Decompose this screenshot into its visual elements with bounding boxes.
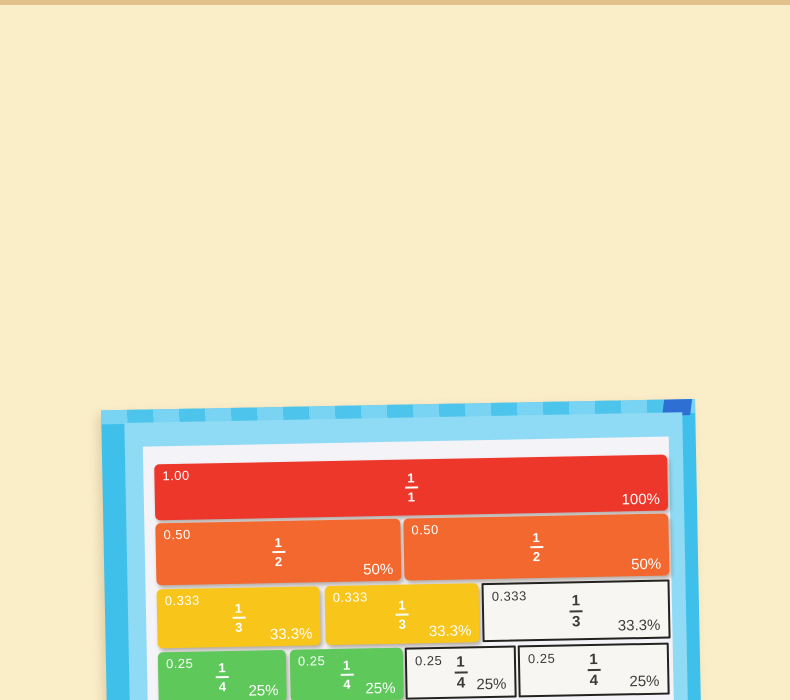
fraction-numerator: 1 (569, 593, 582, 612)
fraction-label: 1 3 (232, 601, 246, 633)
decimal-label: 0.50 (163, 527, 191, 543)
percent-label: 50% (363, 561, 393, 579)
fraction-numerator: 1 (454, 654, 467, 673)
fraction-tile-1-4: 0.25 1 4 25% (158, 650, 287, 700)
fraction-tile-1-3: 0.333 1 3 33.3% (157, 586, 321, 648)
fraction-board: 1.00 1 1 100% 0.50 1 2 50% (101, 399, 701, 700)
fraction-label: 1 3 (569, 593, 583, 629)
fraction-denominator: 4 (587, 671, 600, 688)
decimal-label: 0.333 (165, 593, 200, 609)
fraction-numerator: 1 (215, 661, 228, 678)
fraction-numerator: 1 (587, 652, 600, 671)
decimal-label: 0.25 (298, 653, 326, 669)
decimal-label: 0.25 (528, 651, 556, 667)
fraction-denominator: 2 (530, 548, 543, 563)
fraction-denominator: 1 (405, 488, 418, 503)
row-thirds: 0.333 1 3 33.3% 0.333 1 3 33.3% (157, 580, 671, 649)
fraction-label: 1 3 (395, 598, 409, 630)
fraction-numerator: 1 (232, 601, 245, 618)
fraction-tile-1-1: 1.00 1 1 100% (154, 455, 668, 521)
decimal-label: 0.50 (411, 522, 439, 538)
row-wholes: 1.00 1 1 100% (154, 455, 668, 521)
row-quarters: 0.25 1 4 25% 0.25 1 4 25% 0.25 (158, 643, 672, 700)
percent-label: 100% (621, 491, 660, 509)
fraction-label: 1 4 (215, 661, 229, 693)
percent-label: 25% (365, 680, 395, 698)
decimal-label: 1.00 (162, 468, 190, 484)
fraction-numerator: 1 (530, 531, 543, 548)
fraction-denominator: 3 (396, 615, 409, 630)
fraction-cell-1-4-printed: 0.25 1 4 25% (405, 645, 517, 699)
percent-label: 33.3% (270, 625, 313, 643)
fraction-denominator: 3 (570, 612, 583, 629)
fraction-label: 1 1 (404, 471, 418, 503)
fraction-tile-1-3: 0.333 1 3 33.3% (325, 583, 480, 645)
fraction-numerator: 1 (272, 536, 285, 553)
fraction-numerator: 1 (340, 659, 353, 676)
decimal-label: 0.333 (492, 588, 527, 604)
fraction-cell-1-4-printed: 0.25 1 4 25% (518, 643, 670, 698)
fraction-label: 1 4 (340, 659, 354, 691)
fraction-tiles-product-photo: 1.00 1 1 100% 0.50 1 2 50% (0, 0, 790, 700)
percent-label: 50% (631, 556, 661, 574)
decimal-label: 0.25 (166, 656, 194, 672)
fraction-label: 1 4 (587, 652, 601, 688)
percent-label: 33.3% (429, 622, 472, 640)
fraction-tile-1-2: 0.50 1 2 50% (155, 519, 401, 586)
percent-label: 25% (476, 676, 506, 694)
row-halves: 0.50 1 2 50% 0.50 1 2 50% (155, 514, 669, 586)
fraction-cell-1-3-printed: 0.333 1 3 33.3% (481, 580, 670, 643)
percent-label: 25% (629, 673, 659, 691)
fraction-denominator: 4 (340, 676, 353, 691)
fraction-denominator: 3 (232, 618, 245, 633)
fraction-denominator: 4 (454, 673, 467, 690)
percent-label: 25% (248, 682, 278, 700)
decimal-label: 0.25 (415, 653, 443, 669)
fraction-label: 1 2 (272, 536, 286, 568)
fraction-tile-1-4: 0.25 1 4 25% (290, 648, 404, 700)
fraction-tile-grid: 1.00 1 1 100% 0.50 1 2 50% (154, 455, 672, 700)
fraction-denominator: 2 (272, 553, 285, 568)
fraction-label: 1 4 (454, 654, 468, 690)
fraction-denominator: 4 (216, 678, 229, 693)
photo-top-edge-strip (0, 0, 790, 5)
decimal-label: 0.333 (333, 589, 368, 605)
fraction-numerator: 1 (395, 598, 408, 615)
fraction-label: 1 2 (530, 531, 544, 563)
percent-label: 33.3% (618, 617, 661, 635)
fraction-tile-1-2: 0.50 1 2 50% (403, 514, 669, 581)
fraction-numerator: 1 (404, 471, 417, 488)
